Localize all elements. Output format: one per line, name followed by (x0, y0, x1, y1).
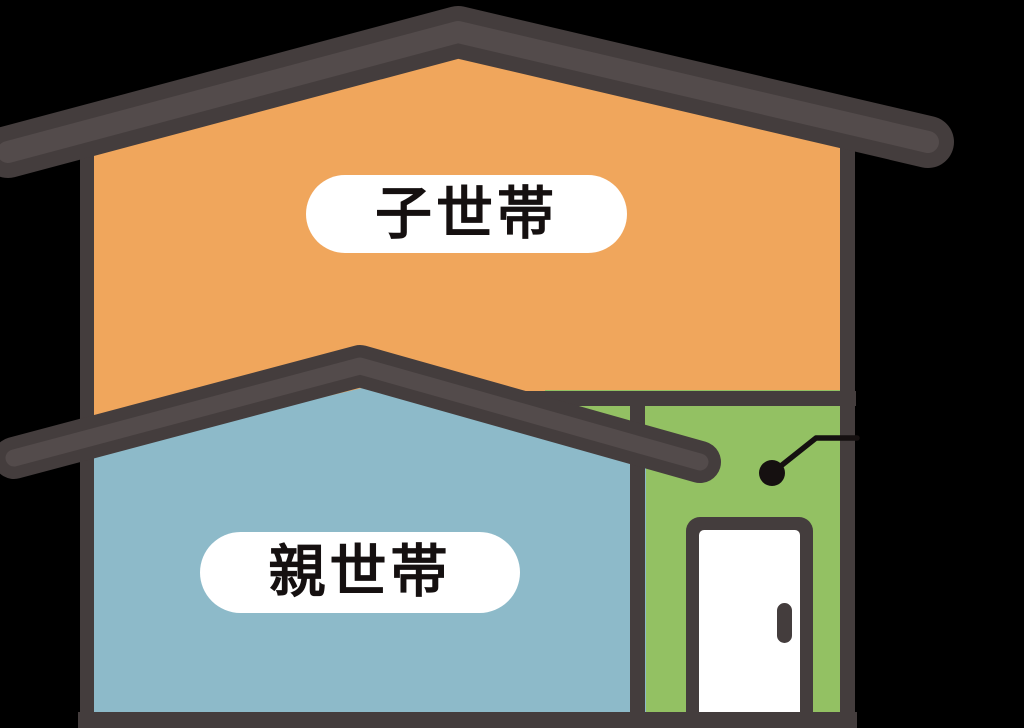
two-household-house-illustration: 子世帯 親世帯 (0, 0, 1024, 728)
callout-dot-icon (759, 460, 785, 486)
callout-layer (0, 0, 1024, 728)
callout-line (772, 438, 857, 473)
